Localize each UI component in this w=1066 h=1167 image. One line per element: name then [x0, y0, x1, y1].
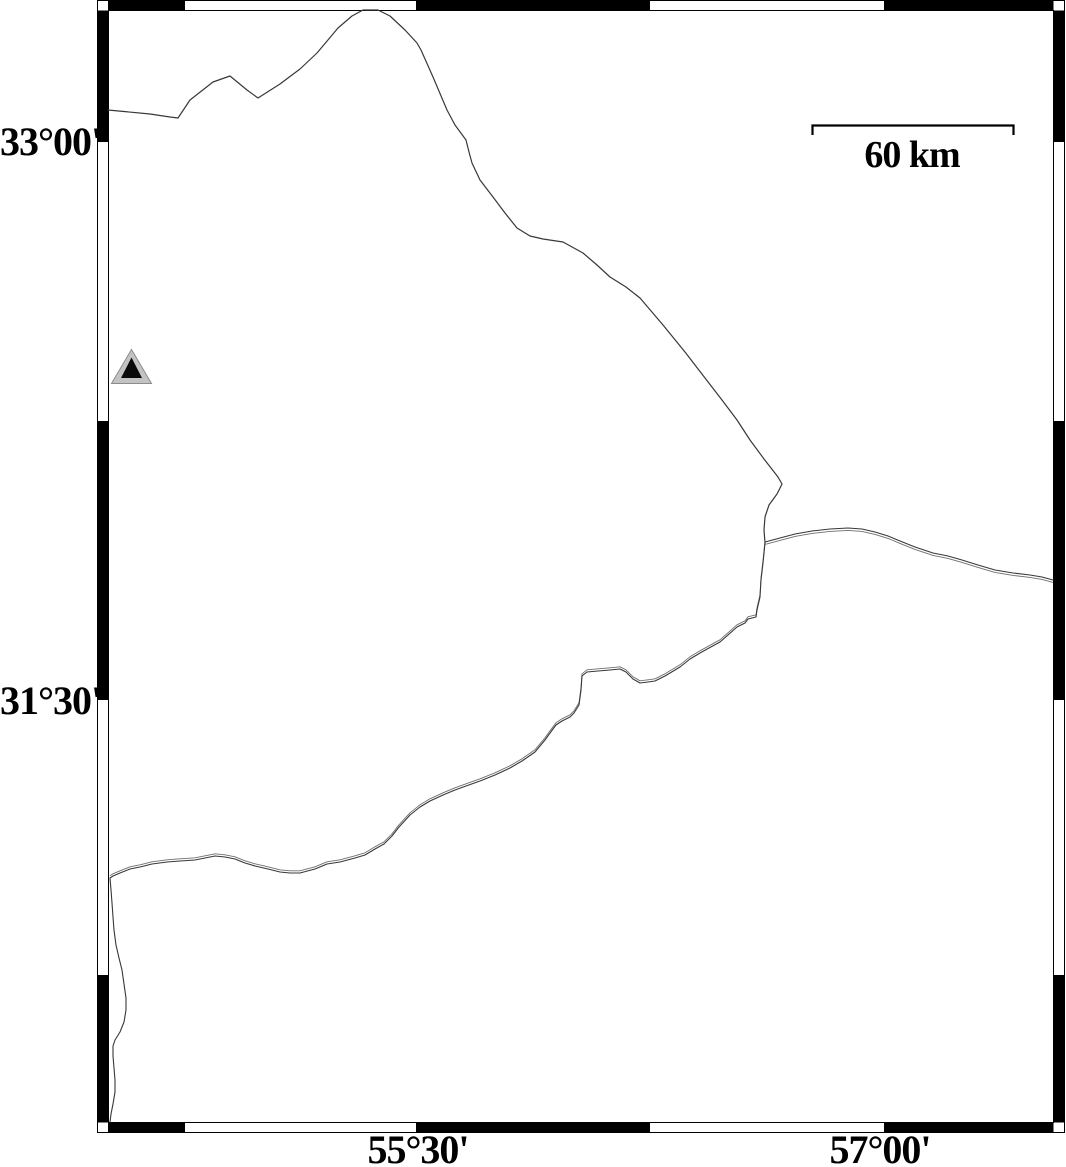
fancy-border-right — [1054, 11, 1065, 1123]
scale-bar-label: 60 km — [812, 135, 1012, 175]
lat-label-33-00: 33°00' — [0, 122, 88, 162]
fancy-border-top — [108, 1, 1054, 11]
lon-label-57-00: 57°00' — [800, 1130, 960, 1167]
lon-label-55-30: 55°30' — [338, 1130, 498, 1167]
boundary-line-right — [765, 528, 1053, 582]
lat-label-31-30: 31°30' — [0, 681, 88, 721]
station-marker-icon — [112, 350, 152, 384]
boundary-line-upper — [108, 10, 782, 543]
boundary-line-lower — [110, 541, 765, 1122]
fancy-border-left — [98, 11, 109, 1123]
map-figure: 33°00' 31°30' 55°30' 57°00' 60 km — [0, 0, 1066, 1167]
